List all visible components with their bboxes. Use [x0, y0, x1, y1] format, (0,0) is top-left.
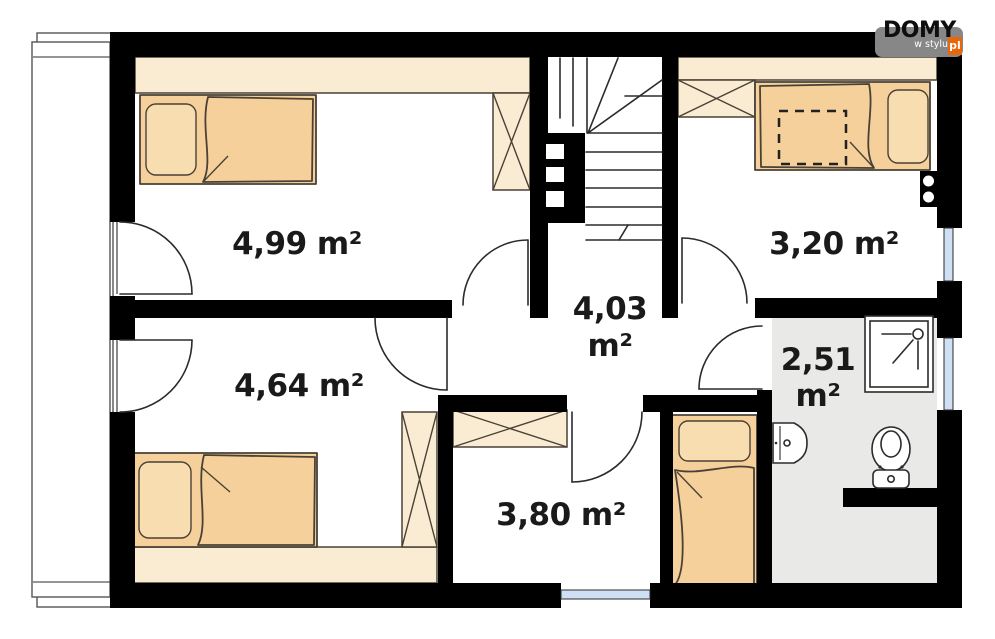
blanket — [198, 455, 315, 545]
wall-bottom-right — [658, 583, 962, 608]
floor-plan-drawing: 4,99 m² 3,20 m² 4,03 m² 4,64 m² 3,80 m² … — [0, 0, 995, 639]
furniture-room-top-right — [678, 57, 937, 207]
door-swing-arc — [463, 240, 528, 305]
door-eaves-top — [117, 222, 192, 294]
door-swing-arc — [120, 340, 192, 412]
pillow — [146, 104, 196, 175]
wall-room380-top-right — [643, 395, 772, 412]
area-label-room-bottom-left: 4,64 m² — [234, 368, 364, 404]
furniture-room-bottom-middle — [453, 410, 567, 447]
wardrobe-strip — [135, 57, 530, 93]
door-swing-arc — [375, 318, 447, 390]
door-room-bottom-middle — [572, 412, 642, 482]
door-room-top-right — [682, 238, 747, 303]
window-bottom — [553, 583, 658, 608]
door-room-top-left — [463, 240, 528, 305]
area-label-hall-value: 4,03 — [573, 291, 648, 327]
bed-bottom-left — [133, 453, 317, 547]
bed-top-right — [755, 82, 930, 170]
wall-nook-right — [757, 390, 772, 583]
wall-bathroom-stub — [843, 488, 937, 507]
flush-button-icon — [888, 476, 894, 482]
wall-right-middle — [937, 289, 962, 330]
wall-stair-niches — [540, 133, 585, 223]
pillow — [139, 462, 191, 538]
wall-right-upper — [937, 57, 962, 220]
window-right-bathroom — [937, 330, 962, 418]
shower — [865, 316, 933, 392]
furniture-room-bottom-left — [133, 412, 437, 583]
door-swing-arc — [682, 238, 747, 303]
toilet — [872, 427, 910, 488]
area-label-bathroom-value: 2,51 — [781, 342, 856, 378]
bed-top-left — [140, 95, 316, 184]
washbasin — [773, 423, 807, 463]
wall-right-lower — [937, 418, 962, 608]
brand-logo-tld-badge: pl — [948, 37, 962, 55]
wall-hall-right — [662, 57, 678, 318]
brand-logo-tagline: w stylu — [914, 40, 948, 50]
pillow — [888, 90, 928, 163]
blanket — [760, 84, 874, 168]
wall-nook-left — [660, 412, 673, 583]
door-eaves-bottom — [117, 340, 192, 412]
furniture-room-top-left — [135, 57, 530, 190]
door-swing-arc — [699, 326, 762, 389]
area-label-room-top-left: 4,99 m² — [232, 226, 362, 262]
area-label-room-bottom-middle: 3,80 m² — [496, 497, 626, 533]
wardrobe-strip — [678, 57, 937, 80]
door-swing-arc — [572, 412, 642, 482]
wall-left-lower — [110, 412, 135, 608]
area-label-room-top-right: 3,20 m² — [769, 226, 899, 262]
pillow — [679, 421, 750, 461]
area-label-hall-unit: m² — [588, 328, 633, 364]
window-right-bedroom — [937, 220, 962, 289]
wall-room380-left — [438, 412, 453, 583]
wall-left-upper — [110, 57, 135, 222]
faucet-icon — [784, 440, 790, 446]
brand-logo: DOMY w stylu pl — [875, 27, 963, 57]
wall-top — [110, 32, 962, 57]
door-bathroom — [699, 326, 762, 389]
bed-nook — [672, 415, 757, 588]
wall-bathroom-top — [755, 298, 937, 318]
area-label-bathroom-unit: m² — [796, 378, 841, 414]
eaves-outline — [32, 33, 113, 607]
blanket — [203, 97, 313, 182]
eaves-inner-line — [32, 42, 110, 597]
shower-head-icon — [913, 329, 923, 339]
floor-plan-page: 4,99 m² 3,20 m² 4,03 m² 4,64 m² 3,80 m² … — [0, 0, 995, 639]
wardrobe-strip — [133, 547, 437, 583]
blanket — [674, 466, 754, 586]
wall-middle-horizontal — [110, 300, 452, 318]
wall-bottom-left — [110, 583, 553, 608]
chimney-flues — [920, 171, 937, 207]
door-room-bottom-left — [375, 318, 447, 390]
door-swing-arc — [120, 222, 192, 294]
wall-room380-top-left — [438, 395, 567, 412]
